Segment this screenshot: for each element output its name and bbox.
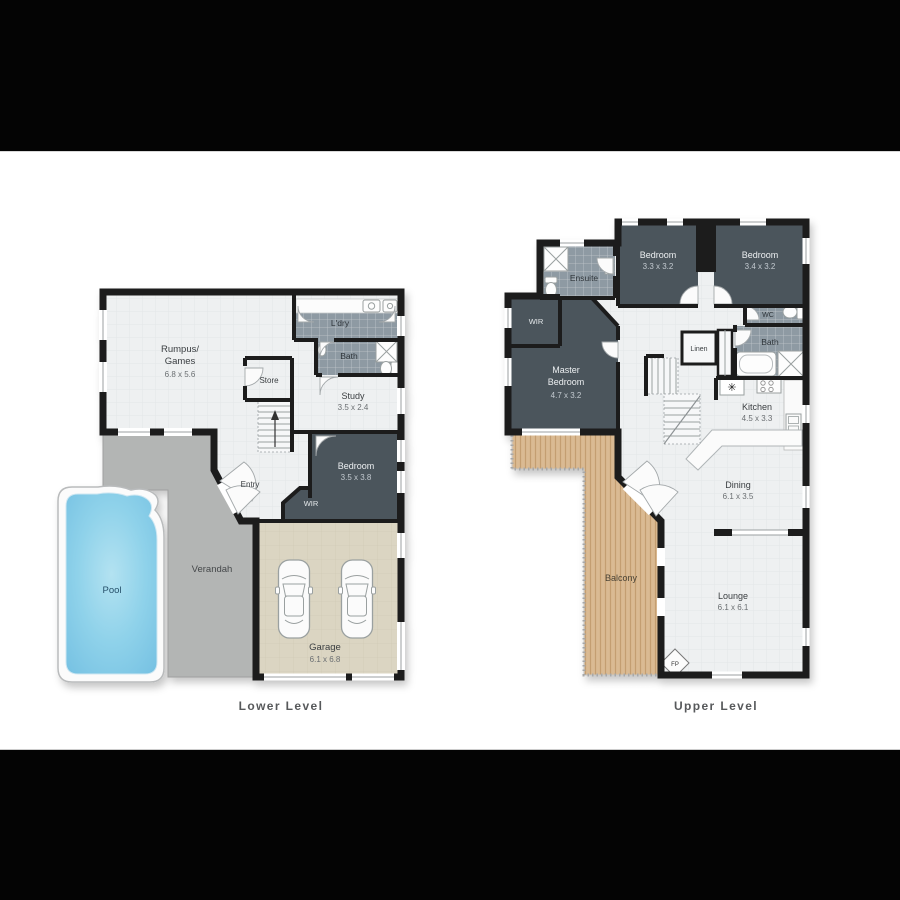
shower-icon [376, 341, 397, 362]
bedroom2-label: Bedroom [742, 250, 779, 260]
stairs-lower [258, 400, 292, 452]
lower-level-plan: Rumpus/ Games 6.8 x 5.6 L'dry Bath Store… [58, 292, 405, 682]
linen-label: Linen [690, 346, 707, 353]
pool-water [66, 493, 157, 674]
lounge-door-opening [657, 548, 665, 566]
lounge-size: 6.1 x 6.1 [718, 603, 749, 612]
bath-upper-label: Bath [761, 337, 779, 347]
shower-icon [778, 351, 804, 377]
car-icon [339, 560, 376, 638]
canvas-bottom-hairline [0, 749, 900, 750]
pool-label: Pool [102, 585, 121, 596]
wir-lower-label: WIR [304, 499, 319, 508]
pantry-symbol: ✳ [727, 382, 736, 394]
lower-level-title: Lower Level [239, 699, 324, 713]
entry-label: Entry [241, 480, 260, 489]
bedroom-lower-label: Bedroom [338, 461, 375, 471]
floorplan-canvas: Rumpus/ Games 6.8 x 5.6 L'dry Bath Store… [0, 0, 900, 900]
pool-area [58, 486, 164, 682]
floorplan-screenshot: Rumpus/ Games 6.8 x 5.6 L'dry Bath Store… [0, 0, 900, 900]
kitchen-label: Kitchen [742, 402, 772, 412]
shower-icon [544, 247, 568, 271]
rumpus-size: 6.8 x 5.6 [165, 370, 196, 379]
dining-label: Dining [725, 480, 751, 490]
ldry-label: L'dry [331, 318, 350, 328]
master-label-line2: Bedroom [548, 377, 585, 387]
rumpus-label-line1: Rumpus/ [161, 344, 199, 355]
bedroom-divider-wall [696, 222, 716, 272]
dining-size: 6.1 x 3.5 [723, 492, 754, 501]
car-icon [276, 560, 313, 638]
garage-label: Garage [309, 642, 341, 653]
bath-lower-label: Bath [340, 351, 358, 361]
study-size: 3.5 x 2.4 [338, 403, 369, 412]
fireplace-label: FP [671, 662, 679, 668]
garage-size: 6.1 x 6.8 [310, 655, 341, 664]
bedroom-lower-size: 3.5 x 3.8 [341, 473, 372, 482]
washer-icon [363, 300, 397, 312]
dining-lounge-divider [714, 529, 806, 536]
bedroom-hall-notch [698, 270, 714, 308]
wir-upper-label: WIR [529, 317, 544, 326]
rumpus-label-line2: Games [165, 356, 196, 367]
bedroom2-size: 3.4 x 3.2 [745, 262, 776, 271]
bedroom1-label: Bedroom [640, 250, 677, 260]
upper-level-title: Upper Level [674, 699, 758, 713]
verandah-label: Verandah [192, 564, 233, 575]
wc-label: WC [762, 312, 774, 319]
kitchen-size: 4.5 x 3.3 [742, 414, 773, 423]
bathtub-icon [736, 352, 776, 376]
canvas-top-hairline [0, 151, 900, 152]
master-size: 4.7 x 3.2 [551, 391, 582, 400]
lounge-door-opening [657, 598, 665, 616]
cooktop-icon [757, 378, 781, 393]
store-label: Store [259, 376, 279, 385]
balcony-label: Balcony [605, 573, 638, 583]
ensuite-label: Ensuite [570, 273, 599, 283]
study-label: Study [341, 391, 365, 401]
master-label-line1: Master [552, 365, 580, 375]
bedroom1-size: 3.3 x 3.2 [643, 262, 674, 271]
lounge-label: Lounge [718, 591, 748, 601]
